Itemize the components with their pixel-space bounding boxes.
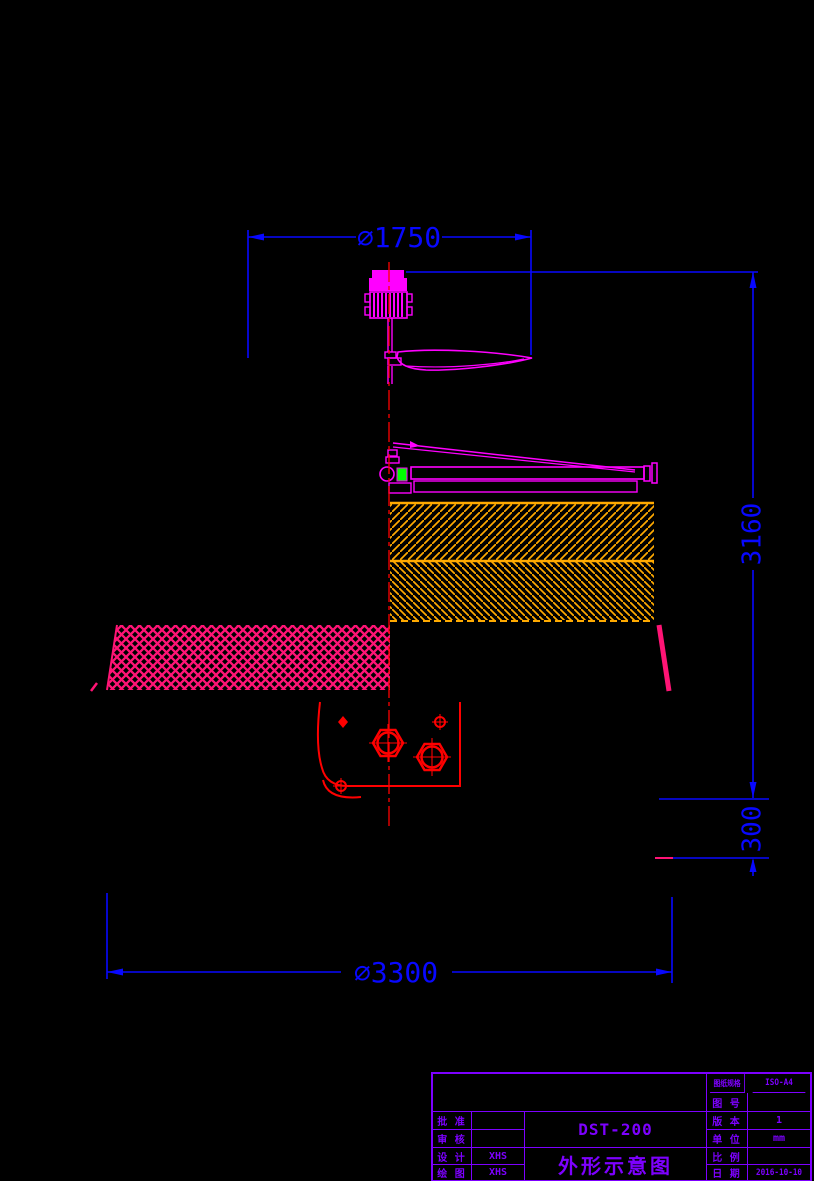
arrowhead — [248, 234, 264, 241]
bracket-lip — [323, 780, 361, 797]
motor-cap-top — [372, 270, 404, 279]
arrowhead — [515, 234, 531, 241]
foundation-section — [390, 503, 654, 621]
arrowhead — [107, 969, 123, 976]
dimension-text-overall-height: 3160 — [738, 503, 768, 566]
titleblock-value-date: 2016-10-10 — [753, 1165, 806, 1180]
tank-lip-left — [91, 683, 97, 691]
titleblock-value-designed: XHS — [472, 1148, 525, 1165]
titleblock-label-checked: 审 核 — [433, 1130, 472, 1148]
motor-cap — [369, 278, 407, 291]
motor-cooling-fins — [374, 293, 402, 317]
arrowhead — [750, 782, 757, 798]
titleblock-label-scale: 比 例 — [707, 1148, 748, 1165]
titleblock-label-version: 版 本 — [707, 1112, 748, 1130]
tie-rod — [393, 447, 635, 472]
titleblock-value-drawn: XHS — [472, 1165, 525, 1180]
titleblock-value-unit: mm — [748, 1130, 810, 1148]
bearing-block-green — [397, 468, 407, 481]
cad-drawing-canvas: ∅1750 3160 300 ∅3300 — [0, 0, 814, 1181]
drawing-sheet: ∅1750 3160 300 ∅3300 — [0, 0, 814, 1181]
hub-bearing — [380, 467, 394, 481]
titleblock-label-sheet-size: 图纸规格 — [710, 1074, 745, 1093]
scraper-blade — [414, 481, 637, 492]
weld-dot — [338, 716, 348, 728]
titleblock-value-approved — [472, 1112, 525, 1130]
tie-rod — [393, 443, 635, 470]
titleblock-value-version: 1 — [748, 1112, 810, 1130]
hub-base — [389, 483, 411, 493]
titleblock-value-checked — [472, 1130, 525, 1148]
beam-end-cap — [644, 466, 650, 481]
titleblock-drawing-title: 外形示意图 — [525, 1148, 707, 1180]
titleblock-label-approved: 批 准 — [433, 1112, 472, 1130]
titleblock-model: DST-200 — [525, 1112, 707, 1148]
shaft-and-impeller — [385, 318, 532, 384]
dimension-text-base-height: 300 — [738, 806, 768, 853]
titleblock-label-unit: 单 位 — [707, 1130, 748, 1148]
dimension-text-top-diameter: ∅1750 — [357, 221, 441, 254]
tie-rod-clamp — [410, 441, 420, 448]
titleblock-label-drawn: 绘 图 — [433, 1165, 472, 1180]
titleblock-label-date: 日 期 — [707, 1165, 748, 1180]
section-hatch-upper — [390, 504, 654, 560]
tank-wall-right-edge — [659, 625, 669, 691]
beam-end-flange — [652, 463, 657, 483]
rake-arm-assembly — [380, 441, 657, 493]
titleblock-value-scale — [748, 1148, 810, 1165]
arrowhead — [656, 969, 672, 976]
hub-collar — [386, 457, 399, 463]
impeller-hub — [385, 352, 396, 358]
arrowhead — [750, 272, 757, 288]
tank-wall-hatch — [107, 625, 390, 690]
tank-wall-section — [91, 625, 673, 858]
titleblock-label-designed: 设 计 — [433, 1148, 472, 1165]
titleblock-label-drawing-no: 图 号 — [707, 1093, 748, 1112]
title-block: 批 准 审 核 设 计 XHS 绘 图 XHS DST-200 外形示意图 图纸… — [431, 1072, 812, 1181]
titleblock-empty-cell — [433, 1074, 707, 1112]
dimension-text-bottom-diameter: ∅3300 — [354, 956, 438, 989]
titleblock-value-sheet-size: ISO-A4 — [753, 1074, 806, 1093]
titleblock-value-drawing-no — [748, 1093, 810, 1112]
arrowhead — [750, 858, 757, 872]
section-hatch-lower — [390, 562, 654, 620]
